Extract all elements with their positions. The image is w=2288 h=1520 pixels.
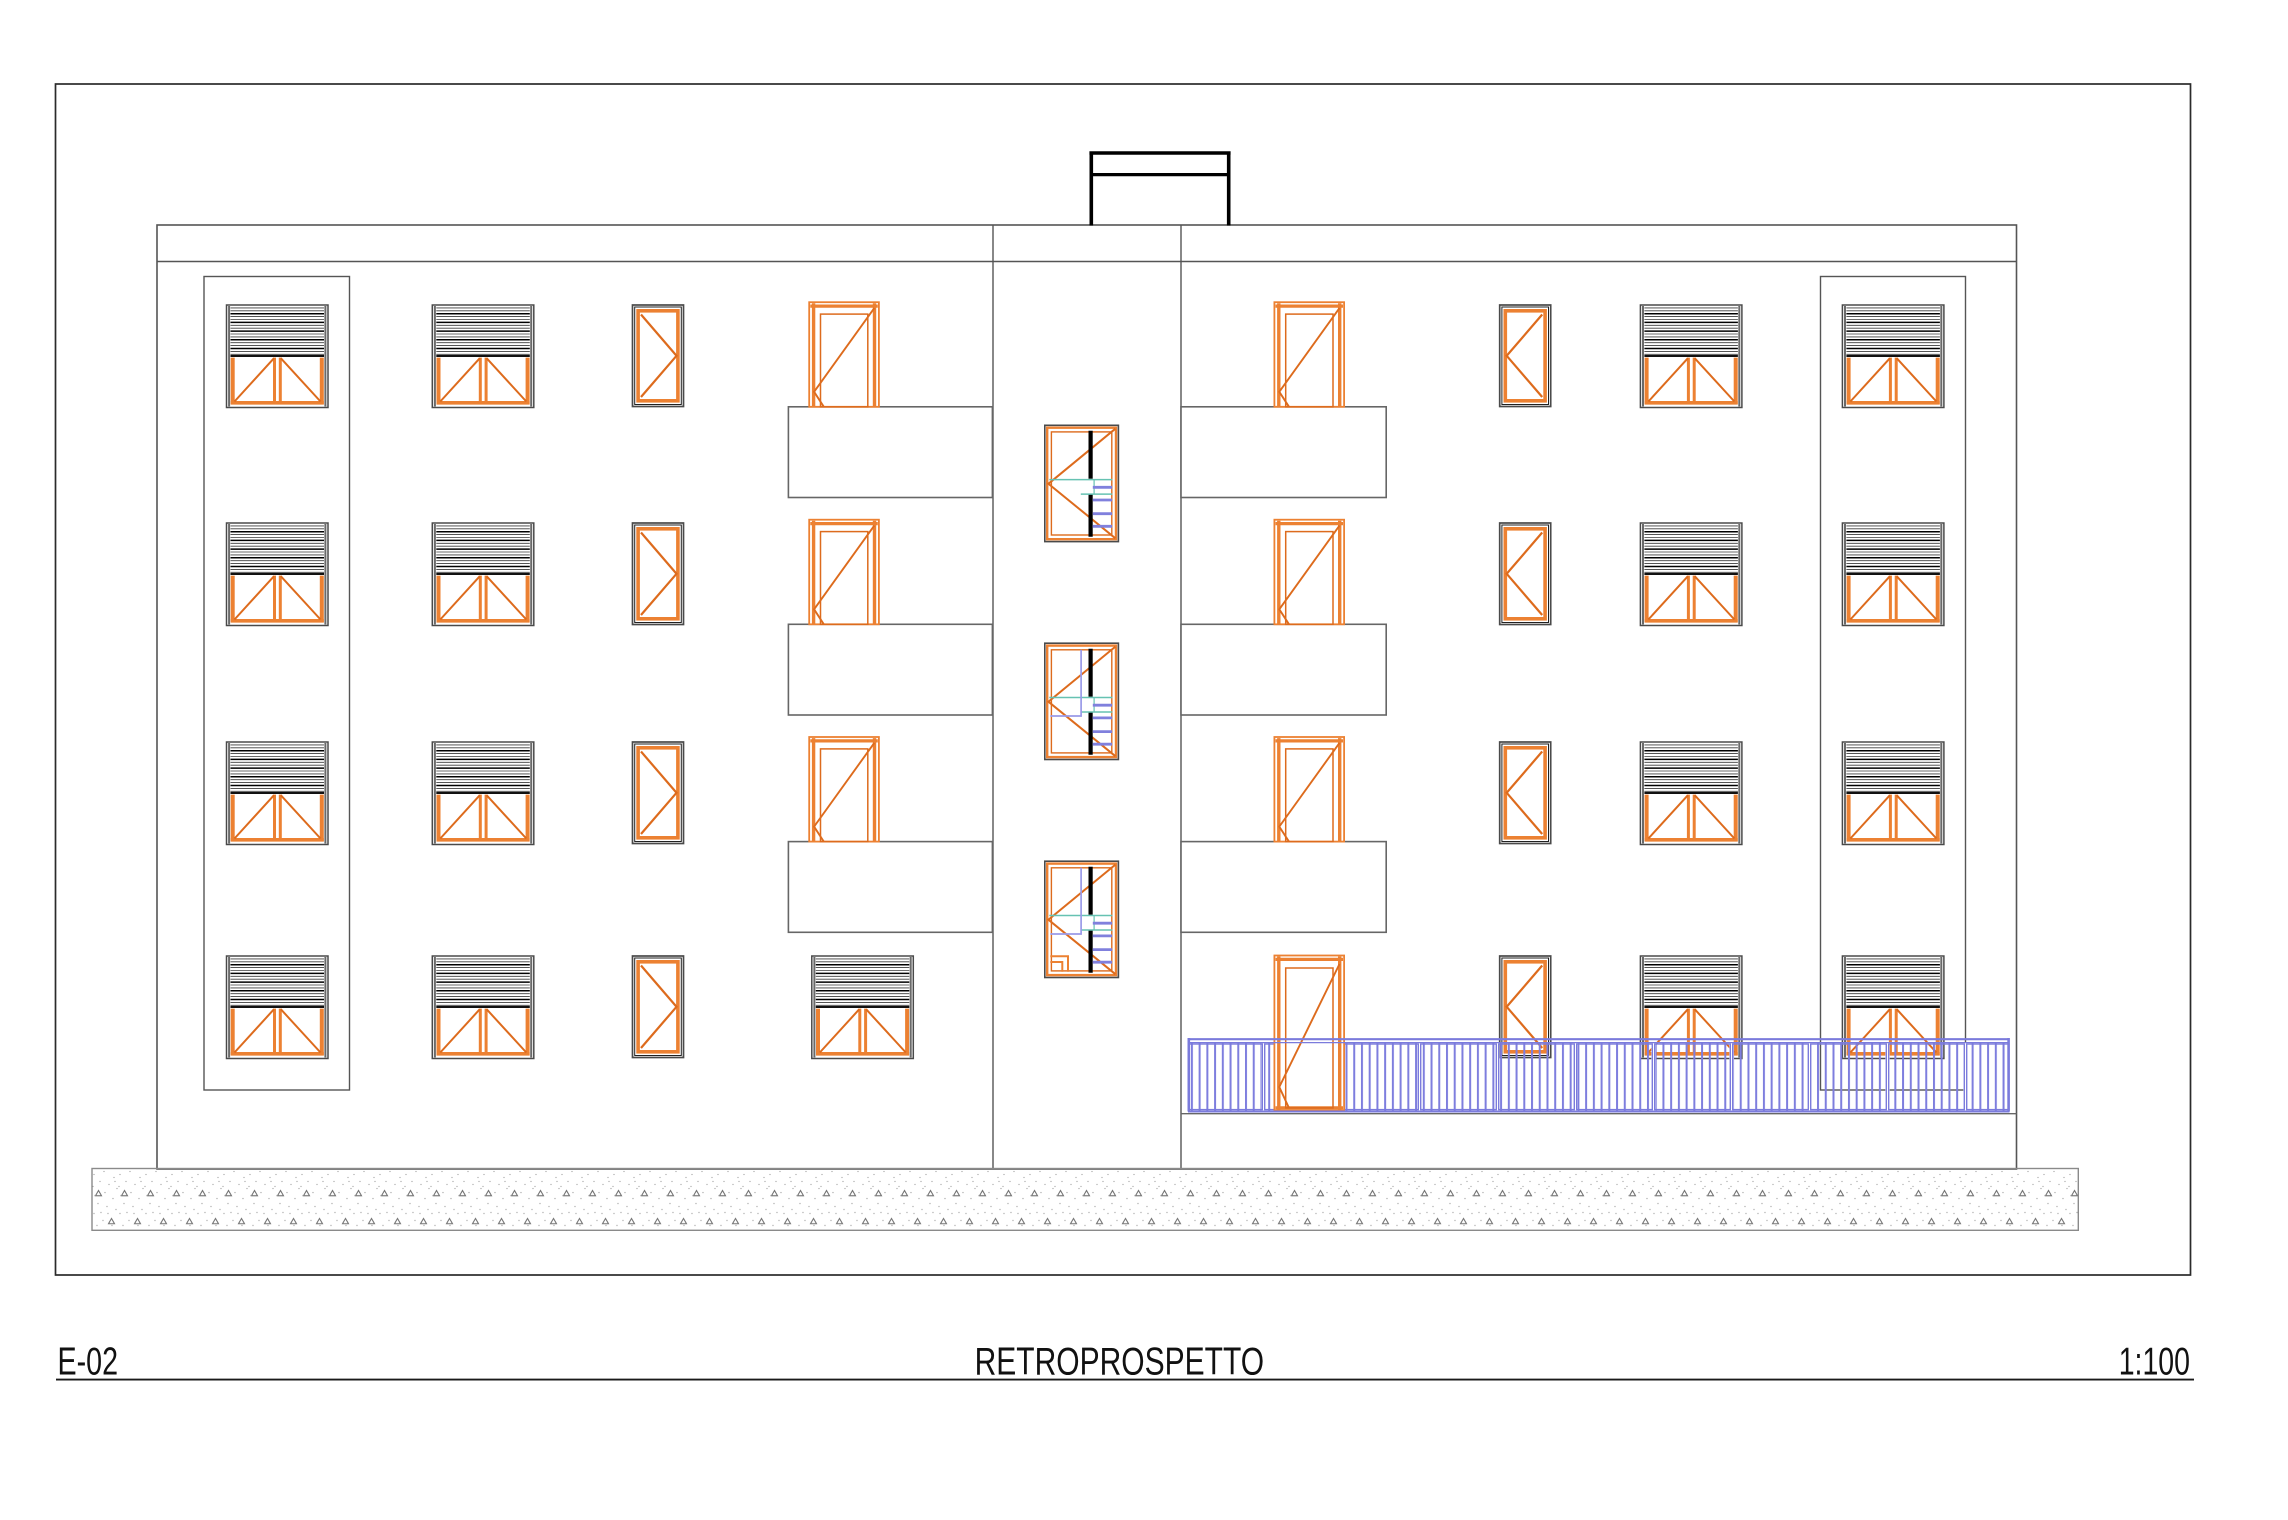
svg-text:1:100: 1:100: [2119, 1341, 2190, 1384]
svg-text:E-02: E-02: [58, 1341, 119, 1384]
svg-text:RETROPROSPETTO: RETROPROSPETTO: [975, 1341, 1265, 1384]
